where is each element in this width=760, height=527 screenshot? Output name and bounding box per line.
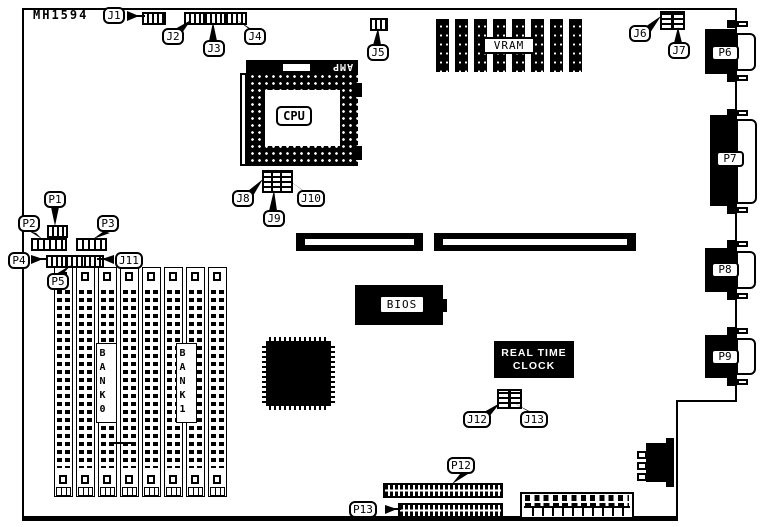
- port-label-p7: P7: [716, 151, 744, 167]
- callout-j1: J1: [103, 7, 125, 24]
- callout-j8: J8: [232, 190, 254, 207]
- callout-p3: P3: [97, 215, 119, 232]
- callout-p1: P1: [44, 191, 66, 208]
- callout-j2: J2: [162, 28, 184, 45]
- callout-j11: J11: [115, 252, 143, 269]
- callout-p2: P2: [18, 215, 40, 232]
- callout-j6: J6: [629, 25, 651, 42]
- callout-j13: J13: [520, 411, 548, 428]
- callout-j12: J12: [463, 411, 491, 428]
- port-label-p6: P6: [711, 45, 739, 61]
- callout-tails: [0, 0, 760, 527]
- callout-j5: J5: [367, 44, 389, 61]
- callout-j9: J9: [263, 210, 285, 227]
- port-label-p8: P8: [711, 262, 739, 278]
- callout-p4: P4: [8, 252, 30, 269]
- callout-j7: J7: [668, 42, 690, 59]
- callout-p13: P13: [349, 501, 377, 518]
- callout-p5: P5: [47, 273, 69, 290]
- callout-j3: J3: [203, 40, 225, 57]
- callout-j4: J4: [244, 28, 266, 45]
- callout-j10: J10: [297, 190, 325, 207]
- callout-p12: P12: [447, 457, 475, 474]
- motherboard-diagram: MH1594 AMP CPU VRAM BIOS REAL TIME CLOCK…: [0, 0, 760, 527]
- port-label-p9: P9: [711, 349, 739, 365]
